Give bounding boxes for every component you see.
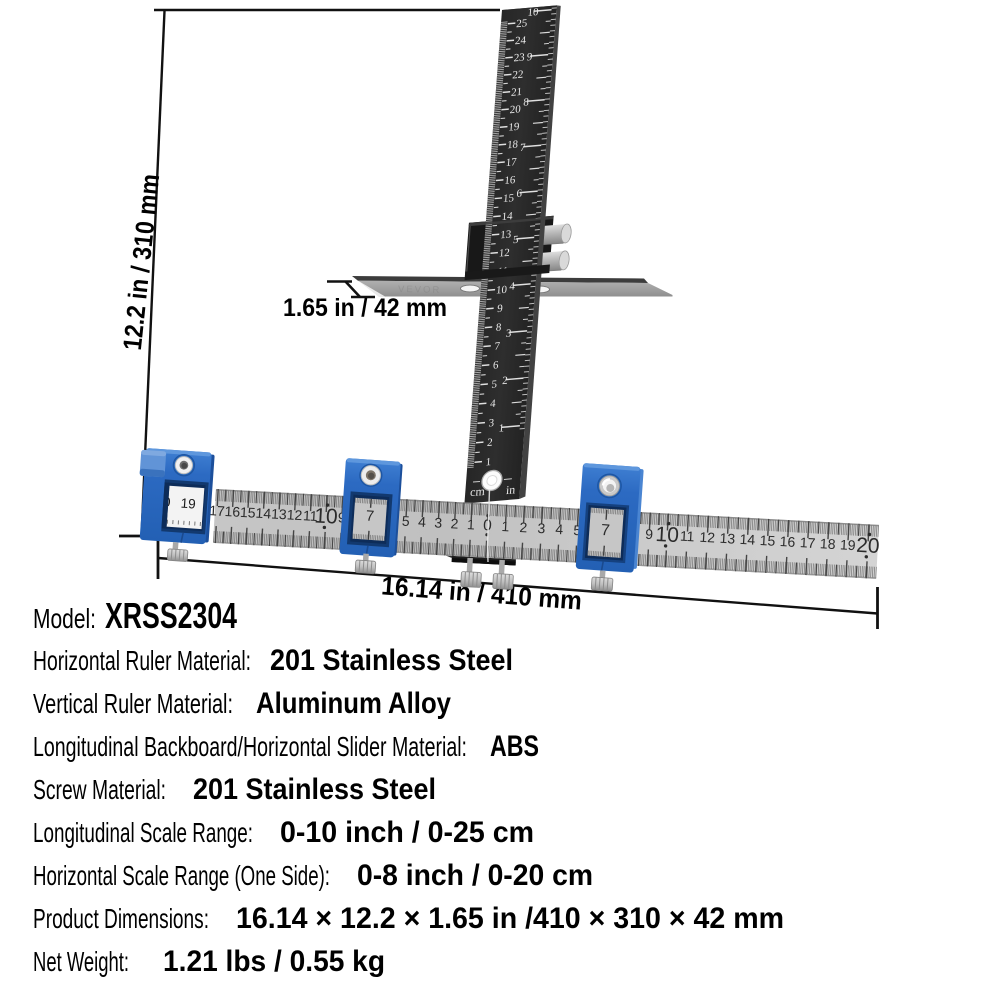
svg-text:201 Stainless Steel: 201 Stainless Steel <box>193 773 436 806</box>
svg-text:10: 10 <box>527 6 539 19</box>
svg-text:2: 2 <box>502 375 508 387</box>
svg-text:15: 15 <box>503 192 515 205</box>
svg-text:15: 15 <box>759 532 776 549</box>
svg-text:14: 14 <box>255 505 272 522</box>
svg-text:16.14 × 12.2 × 1.65 in /410 ×: 16.14 × 12.2 × 1.65 in /410 × 310 × 42 m… <box>236 902 784 935</box>
svg-text:7: 7 <box>600 522 610 540</box>
svg-text:7: 7 <box>365 508 375 526</box>
svg-text:20: 20 <box>856 534 881 558</box>
svg-text:Model:: Model: <box>33 603 96 634</box>
svg-text:Vertical Ruler Material:: Vertical Ruler Material: <box>33 688 233 719</box>
svg-text:21: 21 <box>511 86 523 99</box>
svg-text:2: 2 <box>450 515 459 531</box>
svg-text:24: 24 <box>515 34 527 47</box>
svg-text:19: 19 <box>180 496 196 512</box>
svg-text:16.14 in / 410 mm: 16.14 in / 410 mm <box>380 570 583 615</box>
svg-text:16: 16 <box>224 503 241 520</box>
svg-text:1.65 in / 42 mm: 1.65 in / 42 mm <box>283 294 447 322</box>
svg-text:23: 23 <box>513 51 525 64</box>
svg-text:Aluminum Alloy: Aluminum Alloy <box>256 687 451 720</box>
svg-text:16: 16 <box>779 533 796 550</box>
svg-text:17: 17 <box>505 156 517 169</box>
svg-text:18: 18 <box>820 535 837 552</box>
svg-text:1: 1 <box>485 456 491 468</box>
svg-text:Longitudinal Scale Range:: Longitudinal Scale Range: <box>33 817 253 848</box>
svg-text:1.21 lbs / 0.55 kg: 1.21 lbs / 0.55 kg <box>163 945 385 978</box>
svg-text:10: 10 <box>655 523 680 547</box>
svg-text:12: 12 <box>286 506 303 523</box>
svg-text:22: 22 <box>512 69 524 82</box>
svg-text:25: 25 <box>516 17 528 30</box>
svg-text:14: 14 <box>739 531 756 548</box>
svg-text:12: 12 <box>498 247 510 260</box>
svg-text:3: 3 <box>434 514 443 530</box>
svg-text:2: 2 <box>519 519 528 535</box>
svg-text:0-8 inch / 0-20 cm: 0-8 inch / 0-20 cm <box>357 859 593 892</box>
svg-text:Screw Material:: Screw Material: <box>33 774 166 805</box>
svg-text:12: 12 <box>699 529 716 546</box>
svg-text:XRSS2304: XRSS2304 <box>105 595 237 636</box>
svg-text:15: 15 <box>240 504 257 521</box>
svg-text:12.2 in / 310 mm: 12.2 in / 310 mm <box>117 172 165 351</box>
svg-text:20: 20 <box>509 103 521 116</box>
svg-text:13: 13 <box>271 506 288 523</box>
svg-text:17: 17 <box>799 534 816 551</box>
svg-text:3: 3 <box>537 520 546 536</box>
svg-text:4: 4 <box>555 521 564 537</box>
svg-text:11: 11 <box>303 507 319 524</box>
svg-text:16: 16 <box>504 174 516 187</box>
svg-text:10: 10 <box>496 284 508 297</box>
svg-text:17: 17 <box>209 502 226 519</box>
svg-text:1: 1 <box>467 516 476 532</box>
svg-text:Product Dimensions:: Product Dimensions: <box>33 903 209 934</box>
svg-text:VEVOR: VEVOR <box>398 284 441 296</box>
svg-text:1: 1 <box>498 422 504 434</box>
svg-text:5: 5 <box>402 513 411 529</box>
svg-text:Longitudinal Backboard/Horizon: Longitudinal Backboard/Horizontal Slider… <box>33 731 467 762</box>
svg-text:cm: cm <box>470 484 486 499</box>
svg-text:4: 4 <box>418 513 427 529</box>
svg-text:ABS: ABS <box>490 730 539 763</box>
svg-text:201 Stainless Steel: 201 Stainless Steel <box>270 644 513 677</box>
svg-text:19: 19 <box>840 536 857 553</box>
svg-text:Horizontal Scale Range (One Si: Horizontal Scale Range (One Side): <box>33 860 330 891</box>
svg-text:18: 18 <box>507 138 519 151</box>
svg-text:19: 19 <box>508 121 520 134</box>
svg-text:1: 1 <box>501 518 510 534</box>
svg-text:13: 13 <box>719 530 736 547</box>
svg-text:9: 9 <box>645 526 654 542</box>
svg-text:2: 2 <box>487 437 493 449</box>
svg-text:Net Weight:: Net Weight: <box>33 946 129 977</box>
svg-text:0-10 inch / 0-25 cm: 0-10 inch / 0-25 cm <box>280 816 534 849</box>
svg-text:13: 13 <box>500 228 512 241</box>
svg-text:in: in <box>506 482 516 497</box>
svg-text:Horizontal Ruler Material:: Horizontal Ruler Material: <box>33 645 251 676</box>
svg-text:11: 11 <box>680 528 696 545</box>
